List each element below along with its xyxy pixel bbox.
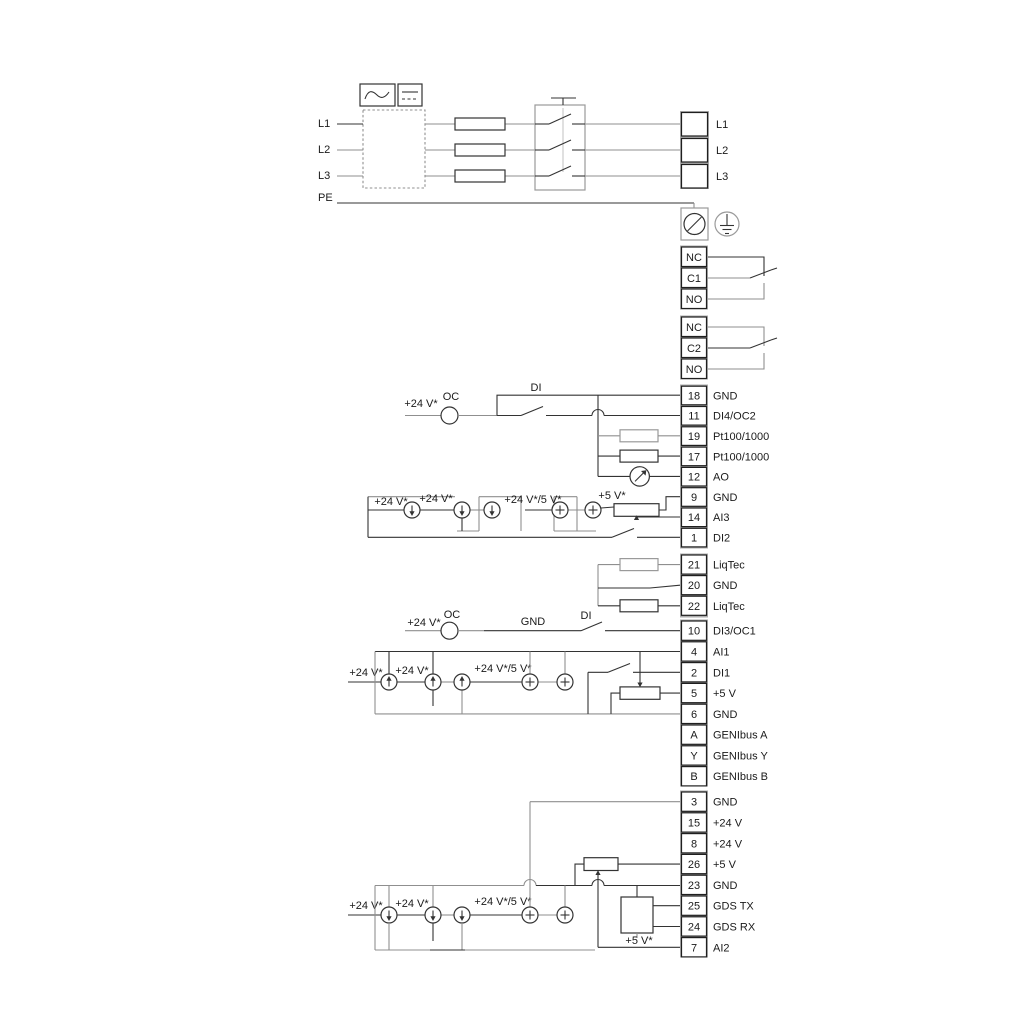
v24-label: +24 V* [374,496,408,508]
terminal-label: +5 V [713,688,737,700]
io1-circuit: +24 V* OC DI [368,382,680,537]
oc-label: OC [444,609,461,621]
terminal-label: DI3/OC1 [713,626,756,638]
di1-switch-icon [608,664,630,673]
pt100-resistor-icon [620,430,658,442]
terminal-id: 1 [691,533,697,545]
terminal-id: 11 [688,411,699,423]
terminal-id: 26 [688,859,700,871]
relay2-nc: NC [686,322,702,334]
di-label: DI [531,382,542,394]
current-source-up-icon [454,674,470,690]
terminal-label: GND [713,492,738,504]
power-section: L1 L2 L3 PE [318,84,739,240]
di3-switch-icon [581,622,602,631]
terminal-id: A [690,730,698,742]
voltage-source-plus-icon [522,907,538,923]
main-switch-icon [535,98,585,190]
liqtec-resistor-icon [620,559,658,571]
v24-label: +24 V* [349,667,383,679]
relay2-block: NC C2 NO [680,316,777,380]
terminal-strip-liqtec: 21 LiqTec 20 GND 22 LiqTec [598,554,745,618]
terminal-id: 9 [691,492,697,504]
terminal-id: 8 [691,838,697,850]
terminal-id: 23 [688,880,700,892]
v24-v5-label: +24 V*/5 V* [504,494,562,506]
di4-switch-icon [521,407,543,416]
terminal-label: +24 V [713,818,743,830]
input-label-l2: L2 [318,144,330,156]
current-source-down-icon [454,907,470,923]
terminal-id: 20 [688,580,700,592]
ai1-circuit: +24 V* +24 V* +24 V*/5 V* [348,652,680,714]
relay2-no: NO [686,364,703,376]
liqtec-sensor-circuit [598,559,680,612]
input-label-pe: PE [318,192,333,204]
terminal-label: AI1 [713,647,730,659]
ai1-potentiometer-icon [611,652,680,714]
terminal-label: GENIbus A [713,730,768,742]
terminal-label: DI2 [713,533,730,545]
terminal-id: B [690,771,697,783]
current-source-down-icon [381,907,397,923]
terminal-label: +5 V [713,859,737,871]
voltage-source-plus-icon [585,502,601,518]
relay1-contact-icon [708,257,777,299]
terminal-label: +24 V [713,838,743,850]
terminal-id: 15 [688,818,700,830]
terminal-id: 12 [688,472,700,484]
terminal-id: 22 [688,601,700,613]
terminal-label: GENIbus B [713,771,768,783]
terminal-label: DI1 [713,667,730,679]
oc-output-icon [441,622,458,639]
terminal-label: LiqTec [713,601,745,613]
voltage-source-plus-icon [557,674,573,690]
input-label-l3: L3 [318,170,330,182]
v24-label: +24 V* [419,493,453,505]
terminal-id: Y [690,750,698,762]
relay2-contact-icon [708,327,777,369]
mains-wires [337,124,694,208]
terminal-label: Pt100/1000 [713,451,769,463]
terminal-strip-io1: 18 GND 11 DI4/OC2 19 Pt100/1000 17 Pt100… [680,385,769,549]
terminal-id: 4 [691,647,697,659]
terminal-strip-io3: 3 GND 15 +24 V 8 +24 V 26 +5 V 23 GND 25… [680,791,756,958]
terminal-label: Pt100/1000 [713,431,769,443]
current-source-down-icon [425,907,441,923]
v24-label: +24 V* [395,898,429,910]
terminal-strip-io2: 10 DI3/OC1 4 AI1 2 DI1 5 +5 V 6 GND A GE… [680,620,768,787]
terminal-id: 21 [688,560,700,572]
terminal-label: AI3 [713,512,730,524]
oc-label: OC [443,391,460,403]
v24-label: +24 V* [395,665,429,677]
terminal-id: 19 [688,431,700,443]
voltage-source-plus-icon [522,674,538,690]
gds-sensor-icon: +5 V* [621,886,680,948]
current-source-down-icon [484,502,500,518]
current-source-up-icon [381,674,397,690]
mains-out-label-l2: L2 [716,145,728,157]
pe-gland-icon [681,208,708,240]
terminal-label: GDS RX [713,922,756,934]
v24-label: +24 V* [349,900,383,912]
dc-symbol-icon [398,84,422,106]
current-source-down-icon [404,502,420,518]
fuse-icons [455,118,505,182]
terminal-id: 18 [688,390,700,402]
terminal-label: LiqTec [713,560,745,572]
ai2-circuit: +5 V* +24 V* +24 V* +24 V*/5 V* [348,802,680,950]
terminal-label: GND [713,797,738,809]
ao-meter-icon [630,467,649,486]
diagram-svg: L1 L2 L3 PE [0,0,1024,1024]
terminal-label: GENIbus Y [713,750,768,762]
terminal-id: 24 [688,922,700,934]
gnd-label: GND [521,616,546,628]
ai3-source-group: +24 V* +24 V* +24 V*/5 V* +5 V* [368,490,626,537]
terminal-id: 3 [691,797,697,809]
relay1-c1: C1 [687,273,701,285]
liqtec-resistor-icon [620,600,658,612]
mains-out-label-l3: L3 [716,171,728,183]
ai2-source-group: +24 V* +24 V* +24 V*/5 V* [348,886,595,951]
wiring-diagram: L1 L2 L3 PE [0,0,1024,1024]
terminal-label: GND [713,709,738,721]
relay1-nc: NC [686,252,702,264]
earth-ground-icon [715,212,739,236]
terminal-label: AI2 [713,942,730,954]
terminal-label: GDS TX [713,901,754,913]
terminal-label: GND [713,880,738,892]
terminal-id: 10 [688,626,700,638]
mains-out-label-l1: L1 [716,119,728,131]
terminal-label: GND [713,580,738,592]
terminal-id: 14 [688,512,700,524]
di3-circuit: +24 V* OC GND DI [405,609,680,639]
v5-label: +5 V* [625,935,653,947]
terminal-id: 25 [688,901,700,913]
current-source-up-icon [425,674,441,690]
oc-output-icon [441,407,458,424]
filter-box [363,110,425,188]
terminal-label: DI4/OC2 [713,411,756,423]
v24-label: +24 V* [404,398,438,410]
mains-terminal-block: L1 L2 L3 [680,111,728,189]
voltage-source-plus-icon [557,907,573,923]
terminal-id: 2 [691,667,697,679]
pt100-resistor-icon [620,450,658,462]
di2-switch-icon [612,529,634,538]
terminal-id: 17 [688,451,700,463]
relay1-block: NC C1 NO [680,246,777,310]
v5-label: +5 V* [598,490,626,502]
current-source-down-icon [454,502,470,518]
terminal-id: 5 [691,688,697,700]
di-label: DI [581,610,592,622]
v24-label: +24 V* [407,617,441,629]
ac-symbol-icon [360,84,395,106]
terminal-id: 7 [691,942,697,954]
terminal-id: 6 [691,709,697,721]
input-label-l1: L1 [318,118,330,130]
v24-v5-label: +24 V*/5 V* [474,896,532,908]
terminal-label: GND [713,390,738,402]
v24-v5-label: +24 V*/5 V* [474,663,532,675]
relay1-no: NO [686,294,703,306]
terminal-label: AO [713,472,729,484]
voltage-source-plus-icon [552,502,568,518]
relay2-c2: C2 [687,343,701,355]
